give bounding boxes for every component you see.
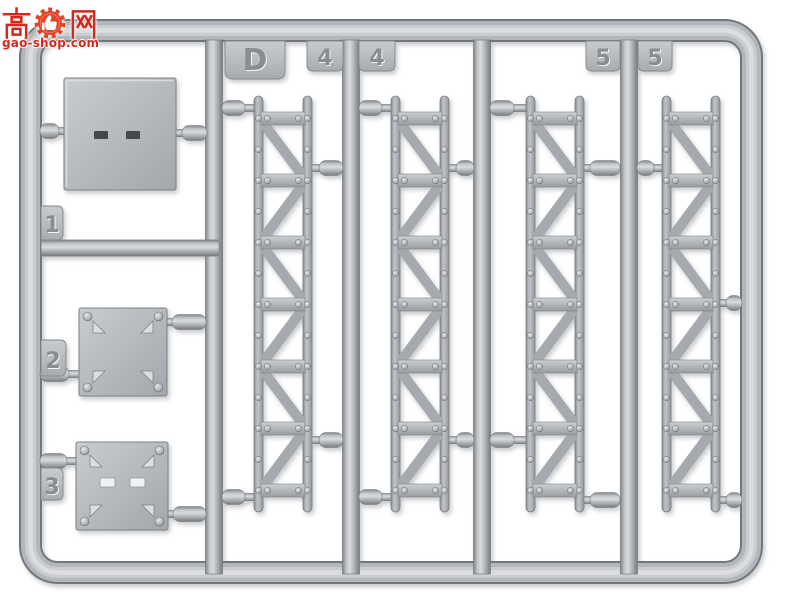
runner-bar (343, 40, 360, 574)
tab-number: 1 (44, 213, 59, 238)
tab-part-5-right: 5 (638, 41, 672, 71)
tab-number: 5 (595, 46, 610, 71)
gate-capsule (319, 161, 343, 176)
gate-capsule (637, 161, 654, 176)
tab-number: 2 (45, 349, 60, 374)
watermark-char-wang (69, 7, 98, 39)
plate-slot (126, 131, 140, 139)
tab-part-5-left: 5 (586, 41, 620, 71)
part-1-plate (64, 78, 176, 190)
gate-capsule (222, 490, 245, 505)
gate-capsule (182, 126, 207, 141)
gate-capsule (726, 296, 742, 311)
corner-rivet (80, 446, 89, 455)
runner-bar (206, 40, 223, 574)
tab-part-1: 1 (41, 206, 63, 240)
runner-bar (474, 40, 491, 574)
gate-capsule (173, 507, 206, 522)
sprue-photo-svg: D 4 4 5 5 1 2 (0, 0, 800, 603)
watermark-logo-row (2, 5, 112, 41)
gate-capsule (726, 493, 742, 508)
part-3-plate (76, 442, 168, 530)
tab-part-3: 3 (41, 468, 63, 500)
corner-rivet (80, 517, 89, 526)
tab-gate-letter-d: D (225, 41, 285, 79)
gate-capsule (359, 490, 382, 505)
corner-rivet (83, 312, 92, 321)
plate-slot (94, 131, 108, 139)
gate-capsule (490, 433, 514, 448)
tab-number: 4 (369, 46, 384, 71)
watermark-gear-thumb-icon (33, 6, 67, 40)
gate-capsule (456, 161, 474, 176)
gate-capsule (40, 454, 67, 469)
gate-capsule (590, 493, 620, 508)
corner-rivet (154, 312, 163, 321)
tab-number: 4 (317, 46, 332, 71)
part-2-plate (79, 308, 167, 396)
tab-number: 3 (44, 475, 59, 500)
gate-capsule (40, 124, 59, 139)
corner-rivet (83, 383, 92, 392)
plate-body (64, 78, 176, 190)
sprue-product-photo: D 4 4 5 5 1 2 (0, 0, 800, 603)
gate-capsule (590, 161, 620, 176)
plate-slot (130, 478, 145, 487)
plate-slot (100, 478, 115, 487)
runner-bar (621, 40, 638, 574)
corner-rivet (154, 383, 163, 392)
watermark: gao-shop.com (2, 5, 112, 50)
corner-rivet (155, 446, 164, 455)
gate-capsule (319, 433, 343, 448)
gate-capsule (222, 101, 245, 116)
runner-bar-horizontal (41, 240, 219, 256)
tab-part-4-left: 4 (307, 41, 343, 71)
tab-part-4-right: 4 (359, 41, 395, 71)
corner-rivet (155, 517, 164, 526)
gate-capsule (490, 101, 514, 116)
tab-number: 5 (647, 46, 662, 71)
gate-capsule (456, 433, 474, 448)
tab-letter: D (243, 43, 268, 78)
tab-part-2: 2 (41, 340, 66, 376)
watermark-char-gao (2, 7, 31, 39)
gate-capsule (172, 315, 206, 330)
gate-capsule (359, 101, 382, 116)
plate-body (79, 308, 167, 396)
